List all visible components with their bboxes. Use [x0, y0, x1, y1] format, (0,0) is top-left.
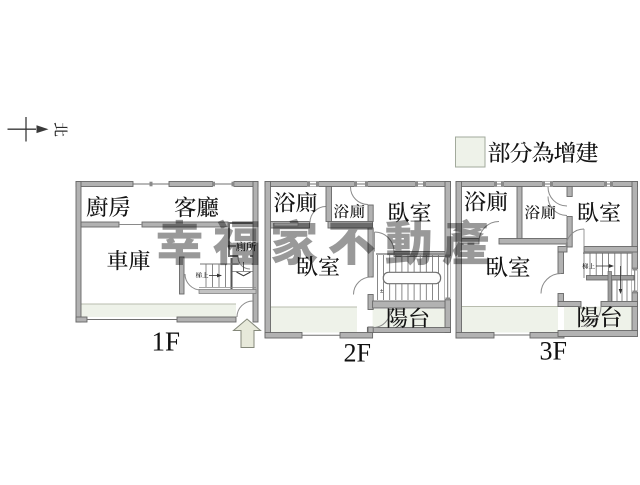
svg-text:1F: 1F — [152, 327, 181, 357]
svg-text:3F: 3F — [540, 337, 567, 366]
svg-text:2F: 2F — [344, 339, 371, 368]
